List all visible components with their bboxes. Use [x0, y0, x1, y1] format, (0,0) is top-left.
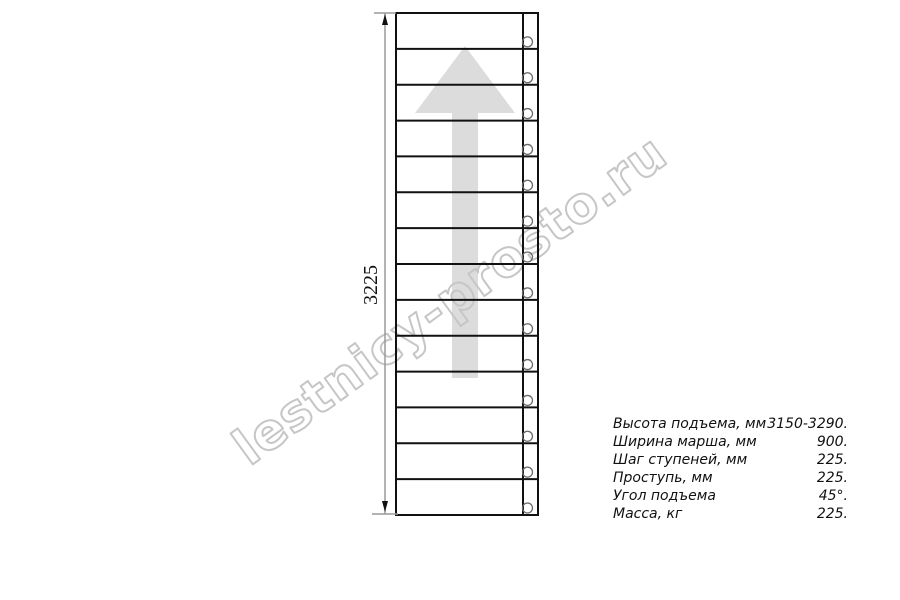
- spec-label: Угол подъема: [613, 487, 716, 505]
- dimension-arrow-down-icon: [382, 501, 388, 512]
- spec-row: Ширина марша, мм 900.: [613, 433, 848, 451]
- dimension-arrow-up-icon: [382, 14, 388, 25]
- spec-label: Шаг ступеней, мм: [613, 451, 747, 469]
- spec-row: Проступь, мм 225.: [613, 469, 848, 487]
- specs-table: Высота подъема, мм 3150-3290. Ширина мар…: [613, 415, 848, 523]
- spec-label: Ширина марша, мм: [613, 433, 757, 451]
- spec-row: Шаг ступеней, мм 225.: [613, 451, 848, 469]
- spec-row: Масса, кг 225.: [613, 505, 848, 523]
- spec-label: Проступь, мм: [613, 469, 713, 487]
- spec-value: 225.: [817, 451, 848, 469]
- spec-label: Высота подъема, мм: [613, 415, 766, 433]
- spec-value: 3150-3290.: [767, 415, 848, 433]
- spec-value: 225.: [817, 469, 848, 487]
- spec-label: Масса, кг: [613, 505, 682, 523]
- spec-value: 900.: [817, 433, 848, 451]
- dimension-label: 3225: [360, 265, 382, 305]
- spec-row: Высота подъема, мм 3150-3290.: [613, 415, 848, 433]
- technical-drawing-page: lestnicy-prosto.ru 3225 Высота подъема, …: [0, 0, 900, 600]
- spec-row: Угол подъема 45°.: [613, 487, 848, 505]
- dimension-3225: 3225: [360, 13, 398, 514]
- spec-value: 45°.: [819, 487, 848, 505]
- spec-value: 225.: [817, 505, 848, 523]
